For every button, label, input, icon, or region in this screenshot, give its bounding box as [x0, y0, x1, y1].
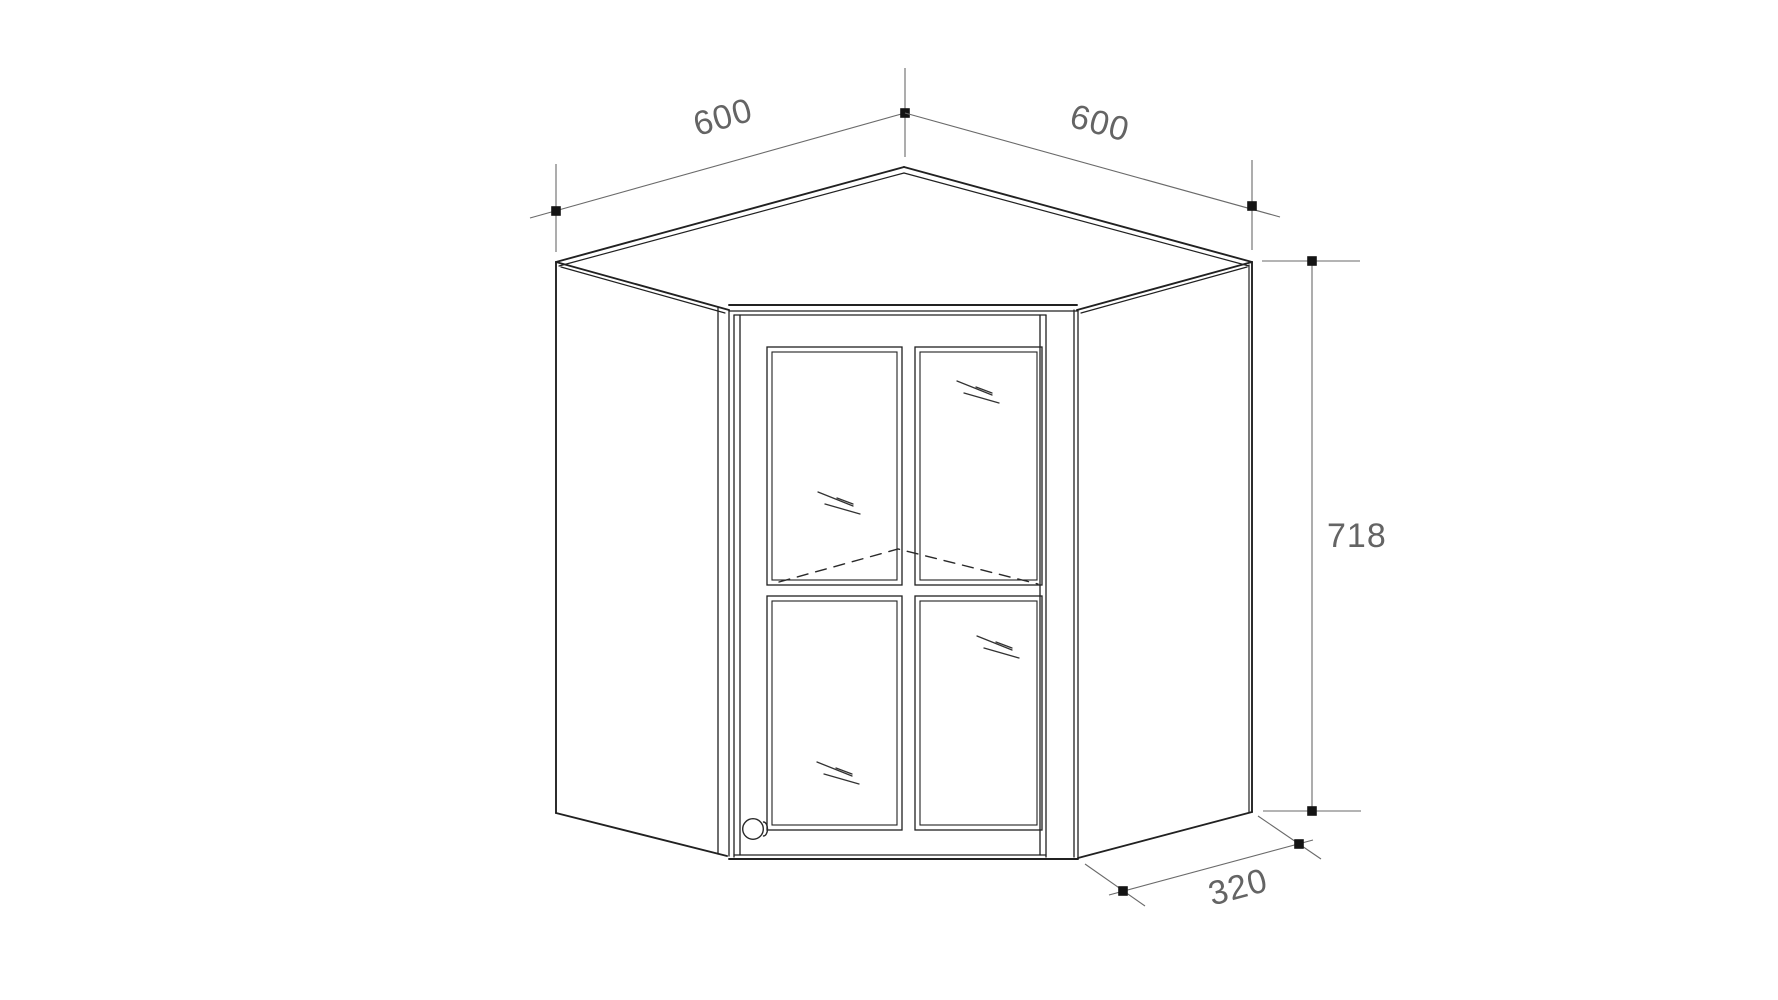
dimension-label-600-left: 600	[689, 91, 757, 144]
door-knob-face	[743, 819, 764, 840]
right-bottom-edge	[1078, 812, 1252, 858]
left-bottom-edge	[556, 813, 727, 856]
dimension-height: 718	[1262, 256, 1387, 816]
glass-pane-bottom-left-glass	[772, 601, 897, 825]
dimension-depth: 320	[1085, 816, 1321, 913]
door-knob	[743, 819, 768, 840]
dimension-marker-dot	[1294, 839, 1304, 849]
dimension-label-600-right: 600	[1066, 97, 1134, 149]
glass-pane-bottom-right-frame	[915, 596, 1042, 830]
top-front-right-edge	[1077, 262, 1252, 310]
dimension-marker-dot	[1307, 256, 1317, 266]
cabinet-door	[734, 315, 1046, 857]
door-knob-side	[764, 822, 768, 836]
glass-mark-top-left	[818, 492, 860, 514]
dimension-width-right: 600	[905, 97, 1280, 250]
top-front-left-edge	[556, 262, 729, 310]
top-back-right-edge	[904, 167, 1252, 262]
technical-drawing-canvas: 600 600 718 320	[0, 0, 1778, 1000]
glass-pane-top-right-frame	[915, 347, 1042, 585]
cabinet-left-panel	[556, 262, 727, 856]
cabinet-body	[556, 167, 1252, 859]
glass-pane-top-left-frame	[767, 347, 902, 585]
glass-mark-top-right	[957, 381, 999, 403]
hidden-shelf-dashed-line	[779, 549, 1038, 584]
dimension-label-718: 718	[1327, 517, 1387, 555]
extension-line	[1085, 864, 1145, 906]
glass-mark-bottom-right	[977, 636, 1019, 658]
glass-pane-bottom-right-glass	[920, 601, 1037, 825]
dimension-marker-dot	[1307, 806, 1317, 816]
dimension-marker-dot	[551, 206, 561, 216]
cabinet-right-panel	[1078, 262, 1252, 858]
dimension-marker-dot	[1118, 886, 1128, 896]
glass-mark-bottom-left	[817, 762, 859, 784]
glass-pane-top-left-glass	[772, 352, 897, 580]
top-back-right-inner	[904, 173, 1249, 266]
dimension-annotations: 600 600 718 320	[530, 68, 1387, 913]
top-back-left-inner	[559, 173, 904, 266]
glass-pane-top-right-glass	[920, 352, 1037, 580]
corner-cabinet-drawing: 600 600 718 320	[0, 0, 1778, 1000]
top-front-right-inner	[1081, 267, 1247, 313]
dimension-width-left: 600	[530, 68, 910, 252]
dimension-marker-dot	[1247, 201, 1257, 211]
top-back-left-edge	[556, 167, 904, 262]
glass-pane-bottom-left-frame	[767, 596, 902, 830]
dimension-label-320: 320	[1204, 861, 1272, 913]
top-front-left-inner	[561, 267, 725, 313]
glass-reflection-marks	[817, 381, 1019, 784]
